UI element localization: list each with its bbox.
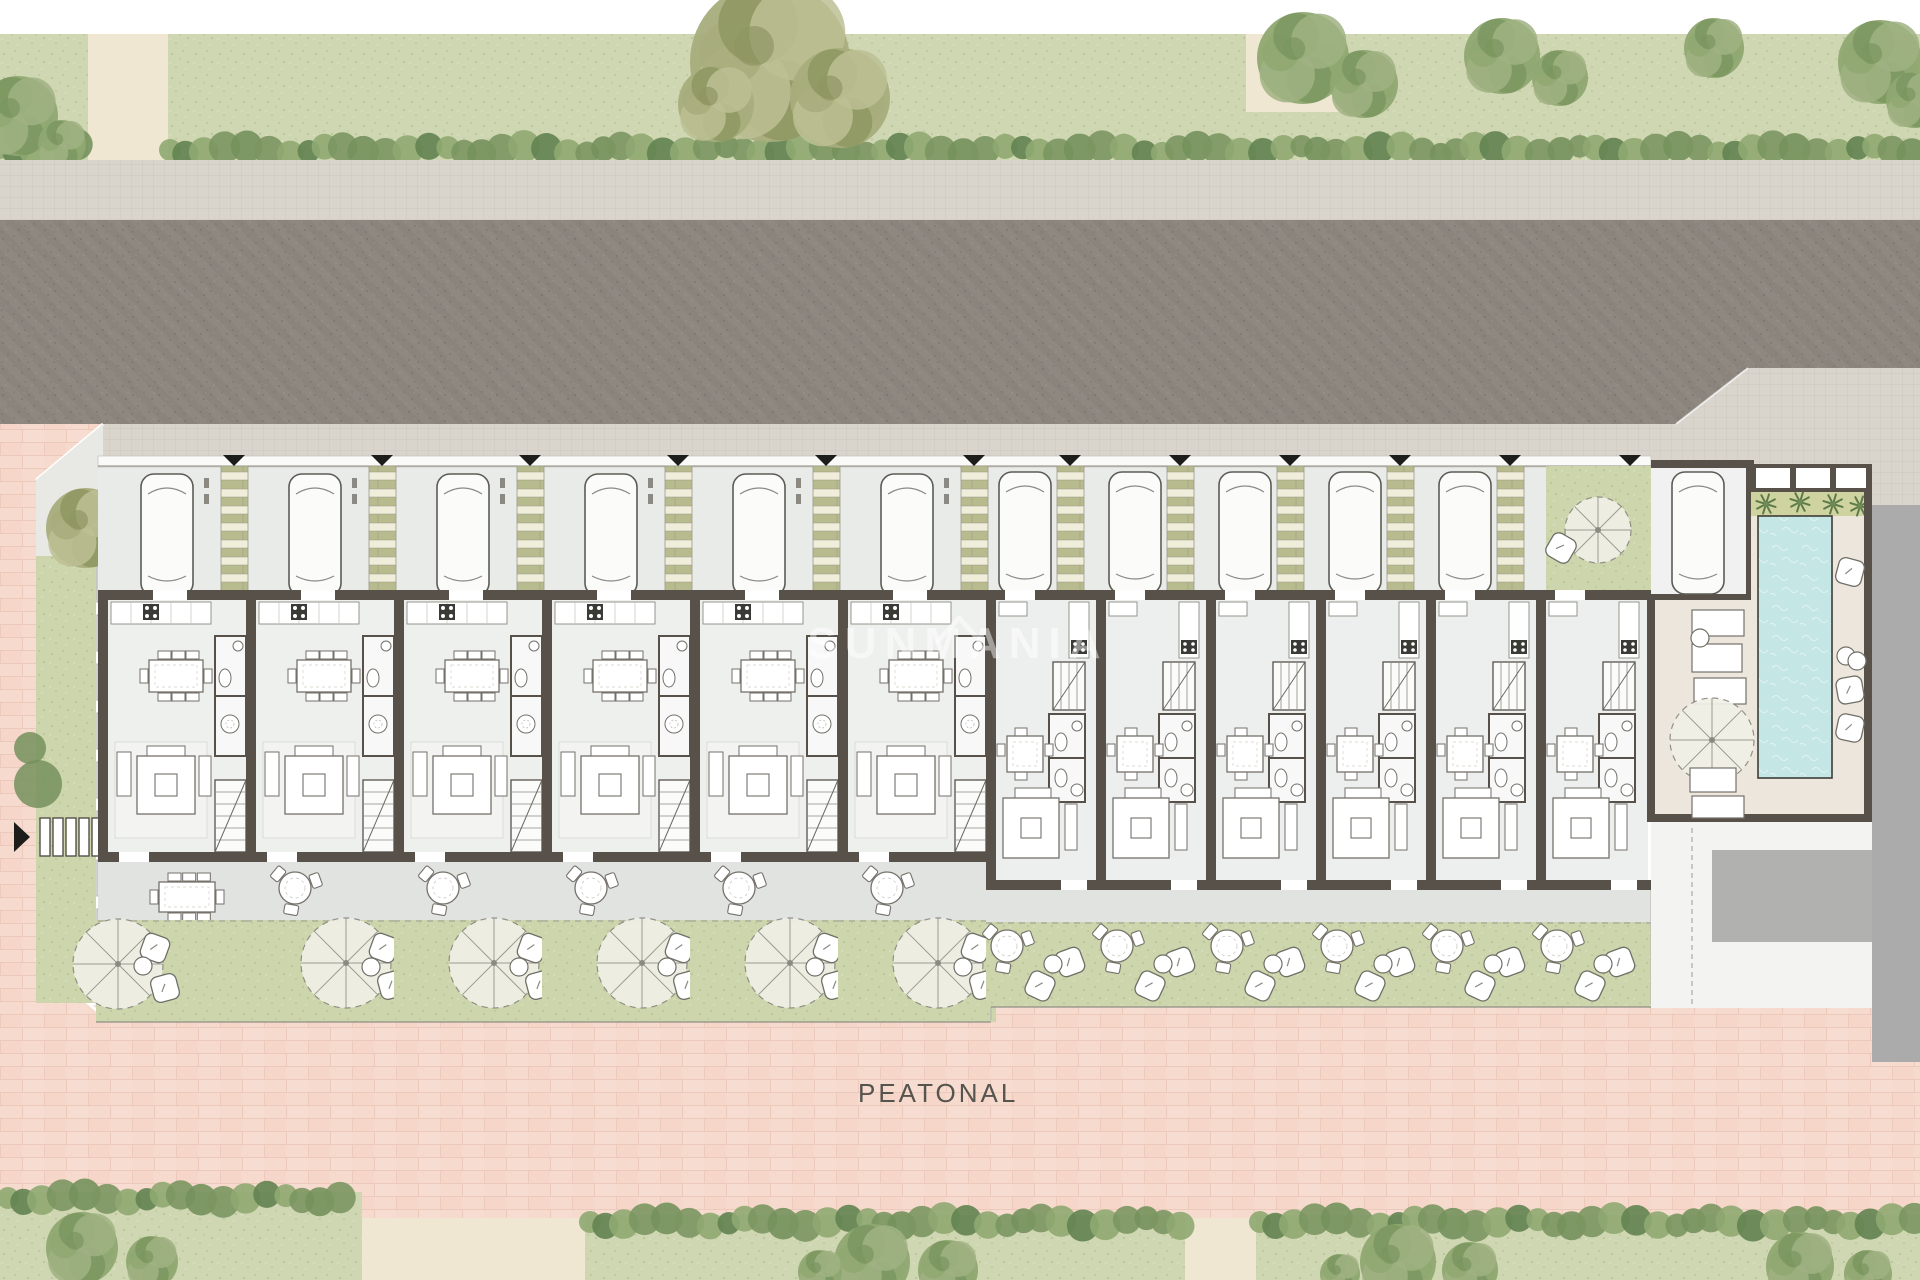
stairs	[215, 780, 246, 852]
parked-car	[1109, 472, 1161, 594]
living-room	[559, 742, 655, 838]
terrace	[1316, 890, 1436, 922]
parked-car	[733, 474, 785, 596]
parked-car	[999, 472, 1051, 594]
bathroom	[1159, 714, 1195, 802]
parked-car	[1329, 472, 1381, 594]
tree	[1330, 50, 1398, 118]
bathroom	[1489, 714, 1525, 802]
tree	[678, 66, 754, 142]
bathroom	[363, 636, 394, 756]
site-plan-canvas: SUNMANIA PEATONAL	[0, 0, 1920, 1280]
parked-car	[1439, 472, 1491, 594]
terrace	[1206, 890, 1326, 922]
parked-car	[289, 474, 341, 596]
tree	[790, 48, 890, 148]
stairs	[1383, 662, 1415, 710]
terrace	[838, 862, 996, 920]
stairs	[1163, 662, 1195, 710]
terrace	[986, 890, 1106, 922]
garden	[838, 918, 1000, 1022]
garden	[73, 919, 256, 1022]
kitchen	[555, 602, 655, 624]
stairs	[807, 780, 838, 852]
garden	[1312, 922, 1436, 1007]
pedestrian-street-label: PEATONAL	[858, 1078, 1018, 1108]
stairs	[1603, 662, 1635, 710]
watermark: SUNMANIA	[807, 618, 1108, 668]
garden	[1202, 922, 1326, 1007]
entrance-gate	[40, 818, 102, 856]
bathroom	[1269, 714, 1305, 802]
living-room	[115, 742, 211, 838]
tree	[1464, 18, 1540, 94]
parked-car	[1219, 472, 1271, 594]
watermark-text: SUNMANIA	[807, 619, 1108, 668]
parasol	[1565, 497, 1631, 563]
terrace	[394, 862, 552, 920]
bathroom	[1049, 714, 1085, 802]
garden	[1092, 922, 1216, 1007]
terrace	[246, 862, 404, 920]
stairs	[1053, 662, 1085, 710]
terrace	[1096, 890, 1216, 922]
stairs	[1493, 662, 1525, 710]
tree	[1684, 18, 1744, 78]
bathroom	[1379, 714, 1415, 802]
garden	[394, 918, 556, 1022]
terrace	[1426, 890, 1546, 922]
site-plan-drawing: SUNMANIA PEATONAL	[0, 0, 1920, 1280]
garden	[982, 922, 1106, 1007]
kitchen	[703, 602, 803, 624]
garden	[690, 918, 852, 1022]
parked-car	[585, 474, 637, 596]
neighbor-strip	[1872, 505, 1920, 1062]
unit-b-12	[1532, 466, 1656, 1007]
bathroom	[215, 636, 246, 756]
parked-car	[437, 474, 489, 596]
units-row	[73, 455, 1656, 1022]
kitchen	[111, 602, 211, 624]
living-room	[263, 742, 359, 838]
stairs	[363, 780, 394, 852]
bathroom	[1599, 714, 1635, 802]
garden	[1422, 922, 1546, 1007]
living-room	[707, 742, 803, 838]
stairs	[955, 780, 986, 852]
living-room	[855, 742, 951, 838]
road	[0, 220, 1920, 424]
upper-sidewalk	[0, 160, 1920, 220]
garden	[1532, 922, 1656, 1007]
terrace	[542, 862, 700, 920]
garden	[542, 918, 704, 1022]
sun-pillow	[1835, 675, 1865, 705]
terrace	[690, 862, 848, 920]
parked-car	[1672, 472, 1724, 594]
sun-pillow	[1835, 713, 1866, 744]
parked-car	[881, 474, 933, 596]
stairs	[659, 780, 690, 852]
tree	[1532, 50, 1588, 106]
rear-parking	[1651, 822, 1872, 1008]
stairs	[1273, 662, 1305, 710]
pool	[1758, 516, 1832, 778]
stairs	[511, 780, 542, 852]
bathroom	[659, 636, 690, 756]
kitchen	[407, 602, 507, 624]
living-room	[411, 742, 507, 838]
garden	[246, 918, 408, 1022]
bathroom	[511, 636, 542, 756]
kitchen	[259, 602, 359, 624]
terrace	[1536, 890, 1656, 922]
parked-car	[141, 474, 193, 596]
